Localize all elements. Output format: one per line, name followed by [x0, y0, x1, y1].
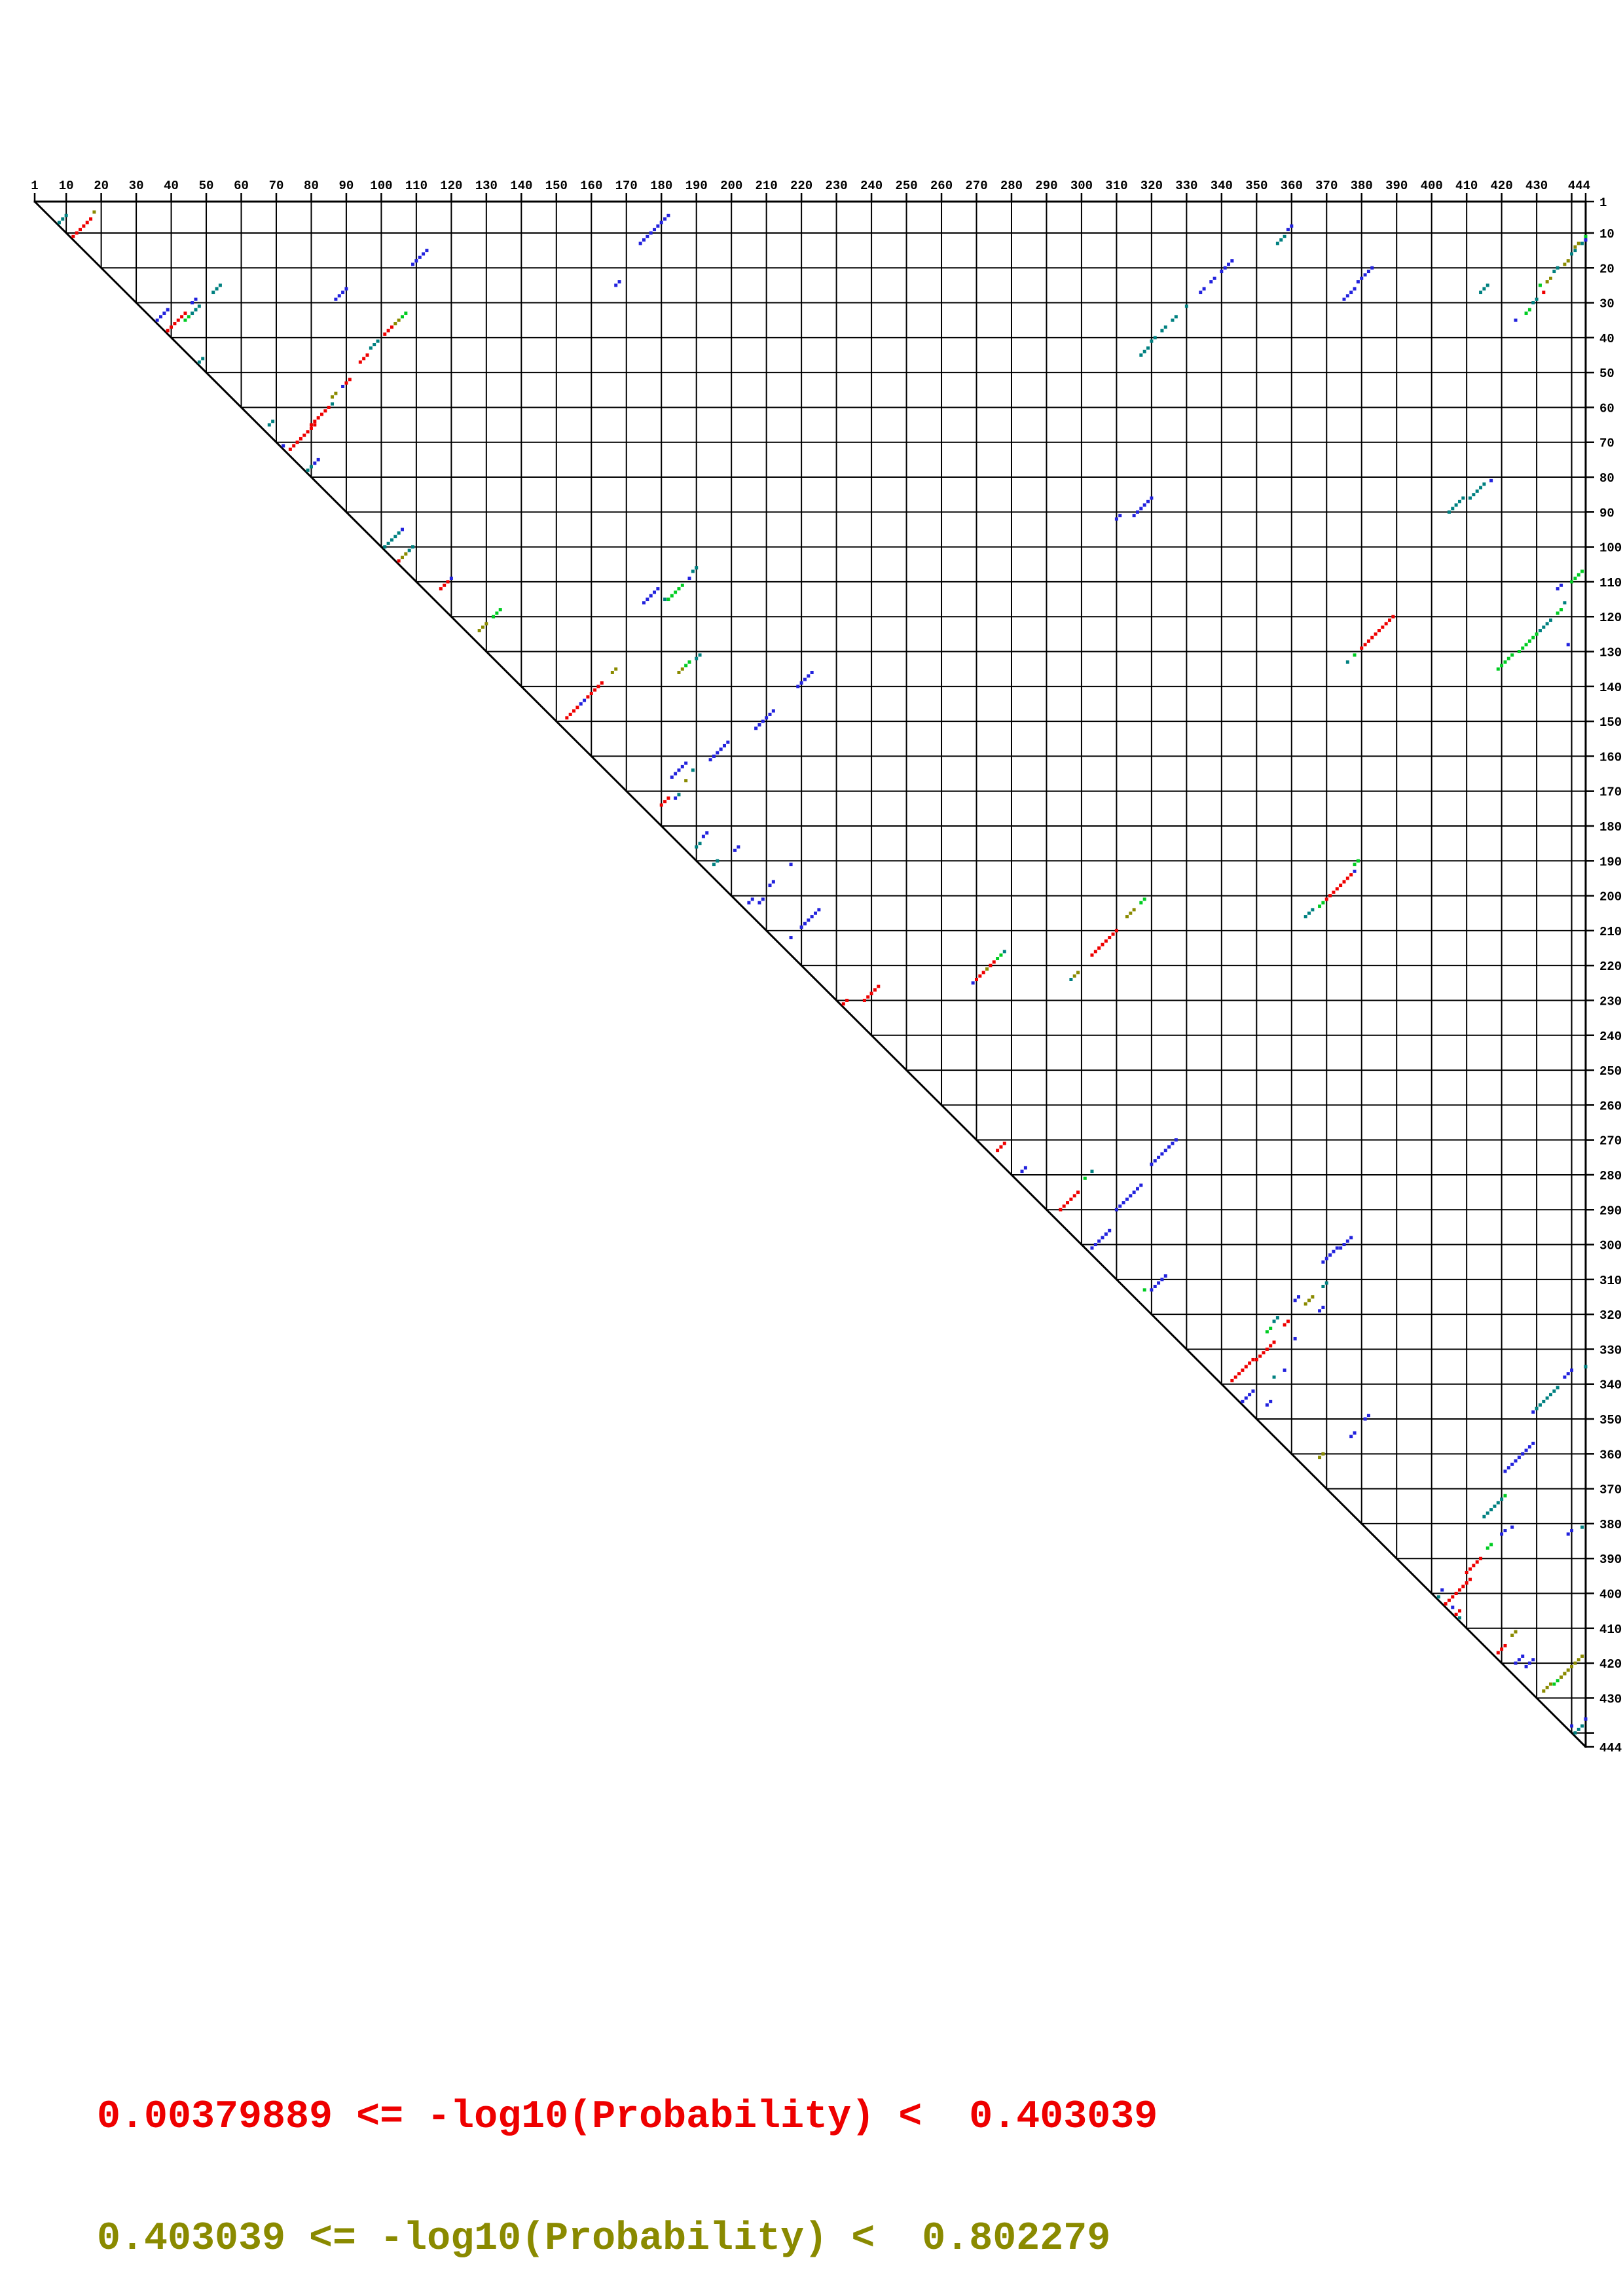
- basepair-dot-b: [1122, 1201, 1125, 1204]
- basepair-dot-g: [1552, 1683, 1556, 1686]
- basepair-dot-r: [1444, 1602, 1448, 1605]
- basepair-dot-b: [720, 747, 723, 751]
- basepair-dot-b: [162, 312, 166, 315]
- page: 1102030405060708090100110120130140150160…: [0, 0, 1623, 2296]
- basepair-dot-o: [677, 671, 680, 674]
- y-tick-label: 170: [1599, 785, 1622, 800]
- basepair-dot-b: [1556, 587, 1559, 590]
- basepair-dot-o: [1073, 975, 1076, 978]
- basepair-dot-b: [1245, 1397, 1248, 1400]
- basepair-dot-r: [1472, 1564, 1475, 1567]
- basepair-dot-b: [1531, 1442, 1535, 1445]
- basepair-dot-t: [677, 793, 680, 797]
- basepair-dot-r: [1542, 291, 1545, 294]
- basepair-dot-b: [450, 577, 453, 580]
- basepair-dot-b: [1090, 1246, 1093, 1249]
- basepair-dot-o: [1570, 1665, 1573, 1668]
- x-tick-label: 20: [94, 179, 109, 193]
- basepair-dot-r: [1059, 1208, 1062, 1211]
- basepair-dot-b: [646, 598, 649, 601]
- basepair-dot-r: [366, 353, 369, 357]
- basepair-dot-t: [198, 304, 201, 308]
- basepair-dot-r: [1325, 897, 1328, 901]
- basepair-dot-o: [481, 626, 484, 629]
- basepair-dot-g: [1503, 660, 1506, 664]
- basepair-dot-b: [1171, 1141, 1174, 1145]
- basepair-dot-b: [677, 768, 680, 772]
- basepair-dot-r: [572, 709, 575, 713]
- basepair-dot-r: [1104, 939, 1108, 942]
- basepair-dot-b: [716, 751, 719, 755]
- y-tick-label: 140: [1599, 681, 1622, 695]
- basepair-dot-b: [1567, 1532, 1570, 1535]
- basepair-dot-r: [296, 440, 299, 444]
- basepair-dot-r: [170, 325, 173, 329]
- y-tick-label: 200: [1599, 890, 1622, 905]
- basepair-dot-r: [1094, 950, 1097, 953]
- basepair-dot-b: [1133, 1191, 1136, 1194]
- basepair-dot-b: [1346, 1240, 1349, 1243]
- basepair-dot-r: [1461, 1585, 1465, 1588]
- x-tick-label: 290: [1035, 179, 1057, 193]
- basepair-dot-b: [618, 280, 621, 283]
- basepair-dot-o: [1321, 1452, 1324, 1456]
- basepair-dot-g: [996, 957, 999, 960]
- basepair-dot-t: [1486, 283, 1489, 287]
- basepair-dot-b: [1521, 1452, 1524, 1456]
- legend: 0.00379889 <= -log10(Probability) < 0.40…: [97, 2016, 1158, 2296]
- basepair-dot-t: [198, 361, 201, 364]
- basepair-dot-t: [1493, 1505, 1496, 1508]
- basepair-dot-t: [1552, 1390, 1556, 1393]
- basepair-dot-r: [877, 985, 880, 988]
- basepair-dot-t: [1482, 482, 1486, 486]
- basepair-dot-r: [575, 706, 579, 709]
- basepair-dot-t: [201, 357, 204, 360]
- basepair-dot-t: [1542, 626, 1545, 629]
- basepair-dot-b: [425, 249, 428, 252]
- basepair-dot-r: [1503, 1644, 1506, 1647]
- y-tick-label: 360: [1599, 1448, 1622, 1462]
- basepair-dot-b: [674, 797, 677, 800]
- basepair-dot-t: [1570, 252, 1573, 255]
- basepair-dot-b: [401, 528, 404, 531]
- y-tick-label: 300: [1599, 1239, 1622, 1253]
- basepair-dot-b: [751, 897, 754, 901]
- basepair-dot-b: [1136, 1187, 1139, 1191]
- basepair-dot-b: [1146, 500, 1150, 503]
- basepair-dot-r: [1286, 1319, 1290, 1323]
- basepair-dot-b: [803, 922, 807, 925]
- basepair-dot-t: [1486, 1511, 1489, 1515]
- basepair-dot-b: [1136, 511, 1139, 514]
- basepair-dot-r: [1367, 639, 1370, 643]
- basepair-dot-b: [642, 601, 646, 604]
- y-tick-label: 110: [1599, 576, 1622, 590]
- basepair-dot-o: [1573, 1662, 1577, 1665]
- basepair-dot-o: [1549, 1683, 1552, 1686]
- basepair-dot-t: [1546, 1397, 1549, 1400]
- basepair-dot-t: [1556, 266, 1559, 270]
- basepair-dot-o: [1580, 1655, 1584, 1658]
- y-tick-label: 290: [1599, 1204, 1622, 1218]
- y-tick-label: 320: [1599, 1308, 1622, 1323]
- basepair-dot-b: [1521, 1655, 1524, 1658]
- x-tick-label: 180: [650, 179, 672, 193]
- basepair-dot-b: [1286, 228, 1290, 231]
- basepair-dot-r: [1255, 1358, 1258, 1361]
- basepair-dot-g: [1318, 905, 1321, 908]
- y-tick-label: 390: [1599, 1552, 1622, 1567]
- basepair-dot-b: [803, 678, 807, 681]
- basepair-dot-b: [1343, 298, 1346, 301]
- basepair-dot-r: [660, 804, 663, 807]
- x-tick-label: 160: [580, 179, 602, 193]
- x-tick-label: 370: [1315, 179, 1338, 193]
- x-tick-label: 320: [1140, 179, 1163, 193]
- basepair-dot-b: [653, 228, 656, 231]
- basepair-dot-r: [327, 406, 331, 409]
- basepair-dot-g: [1556, 611, 1559, 615]
- x-tick-label: 390: [1385, 179, 1408, 193]
- basepair-dot-b: [1154, 1159, 1157, 1162]
- basepair-dot-r: [1497, 1651, 1500, 1655]
- basepair-dot-b: [317, 458, 320, 461]
- basepair-dot-r: [996, 1149, 999, 1152]
- basepair-dot-t: [1573, 249, 1577, 252]
- basepair-dot-t: [61, 217, 64, 221]
- basepair-dot-r: [177, 319, 180, 322]
- probability-dot-plot: 1102030405060708090100110120130140150160…: [0, 0, 1623, 1806]
- y-tick-label: 400: [1599, 1588, 1622, 1602]
- basepair-dot-b: [666, 214, 670, 217]
- basepair-dot-o: [334, 392, 337, 395]
- y-tick-label: 190: [1599, 855, 1622, 869]
- basepair-dot-b: [159, 315, 162, 318]
- basepair-dot-b: [1503, 1529, 1506, 1532]
- basepair-dot-t: [699, 653, 702, 656]
- basepair-dot-b: [757, 723, 761, 726]
- basepair-dot-o: [92, 210, 96, 213]
- basepair-dot-r: [1451, 1595, 1454, 1598]
- basepair-dot-b: [646, 235, 649, 238]
- basepair-dot-b: [334, 298, 337, 301]
- basepair-dot-t: [1139, 353, 1142, 357]
- basepair-dot-b: [156, 319, 159, 322]
- basepair-dot-b: [642, 238, 646, 242]
- basepair-dot-r: [1090, 954, 1093, 957]
- basepair-dot-r: [975, 978, 978, 981]
- basepair-dot-t: [211, 291, 215, 294]
- basepair-dot-r: [180, 315, 183, 318]
- basepair-dot-b: [663, 217, 666, 221]
- basepair-dot-b: [1164, 1149, 1167, 1152]
- basepair-dot-b: [1525, 1665, 1528, 1668]
- basepair-dot-r: [1069, 1198, 1072, 1201]
- basepair-dot-b: [1349, 291, 1353, 294]
- basepair-dot-b: [1175, 1138, 1178, 1141]
- x-tick-label: 220: [790, 179, 812, 193]
- basepair-dot-b: [772, 709, 775, 713]
- basepair-dot-b: [1294, 1337, 1297, 1340]
- basepair-dot-b: [1160, 1152, 1163, 1155]
- basepair-dot-b: [705, 831, 708, 834]
- basepair-dot-o: [1563, 262, 1566, 266]
- basepair-dot-t: [306, 469, 310, 472]
- basepair-dot-t: [215, 287, 219, 291]
- basepair-dot-r: [1465, 1581, 1468, 1585]
- basepair-dot-r: [666, 797, 670, 800]
- basepair-dot-b: [1164, 1274, 1167, 1278]
- basepair-dot-b: [660, 221, 663, 224]
- x-tick-label: 410: [1455, 179, 1478, 193]
- y-tick-label: 40: [1599, 332, 1614, 346]
- basepair-dot-g: [1539, 283, 1542, 287]
- basepair-dot-r: [1479, 1557, 1482, 1560]
- basepair-dot-t: [1539, 1403, 1542, 1407]
- basepair-dot-b: [1570, 1725, 1573, 1728]
- basepair-dot-o: [393, 322, 397, 325]
- basepair-dot-r: [79, 228, 82, 231]
- y-tick-label: 270: [1599, 1134, 1622, 1149]
- x-tick-label: 100: [370, 179, 392, 193]
- basepair-dot-r: [1234, 1376, 1237, 1379]
- basepair-dot-b: [702, 834, 705, 838]
- basepair-dot-t: [65, 214, 68, 217]
- basepair-dot-b: [1321, 1306, 1324, 1309]
- basepair-dot-b: [1567, 1372, 1570, 1375]
- legend-line-1: 0.403039 <= -log10(Probability) < 0.8022…: [97, 2219, 1158, 2259]
- basepair-dot-t: [1003, 950, 1006, 953]
- basepair-dot-r: [845, 999, 848, 1002]
- basepair-dot-t: [1276, 1316, 1279, 1319]
- basepair-dot-b: [1514, 1459, 1518, 1462]
- basepair-dot-b: [772, 880, 775, 884]
- basepair-dot-r: [1458, 1609, 1461, 1613]
- basepair-dot-t: [58, 221, 61, 224]
- y-tick-label: 100: [1599, 541, 1622, 556]
- basepair-dot-b: [1241, 1400, 1244, 1403]
- y-tick-label: 60: [1599, 401, 1614, 416]
- x-tick-label: 300: [1070, 179, 1093, 193]
- basepair-dot-r: [1476, 1560, 1479, 1564]
- basepair-dot-r: [1273, 1340, 1276, 1344]
- basepair-dot-b: [583, 699, 586, 702]
- y-tick-label: 430: [1599, 1692, 1622, 1706]
- basepair-dot-b: [684, 762, 687, 765]
- y-tick-label: 420: [1599, 1657, 1622, 1672]
- basepair-dot-b: [761, 897, 765, 901]
- y-tick-label: 444: [1599, 1741, 1622, 1755]
- basepair-dot-g: [1528, 639, 1531, 643]
- basepair-dot-g: [681, 584, 684, 587]
- probability-dots: [58, 210, 1588, 1734]
- basepair-dot-b: [1209, 280, 1213, 283]
- basepair-dot-b: [754, 726, 757, 730]
- basepair-dot-b: [1143, 503, 1146, 507]
- basepair-dot-t: [1461, 497, 1465, 500]
- basepair-dot-b: [649, 594, 653, 598]
- basepair-dot-r: [600, 681, 604, 685]
- basepair-dot-b: [1157, 1282, 1160, 1285]
- x-tick-label: 280: [1000, 179, 1023, 193]
- plot-border: [34, 201, 1587, 1748]
- x-tick-label: 380: [1351, 179, 1373, 193]
- basepair-dot-r: [1346, 876, 1349, 880]
- basepair-dot-g: [670, 594, 674, 598]
- basepair-dot-g: [1556, 1679, 1559, 1682]
- basepair-dot-r: [1245, 1365, 1248, 1369]
- basepair-dot-b: [1251, 1390, 1254, 1393]
- basepair-dot-t: [699, 842, 702, 845]
- x-tick-label: 10: [59, 179, 74, 193]
- basepair-dot-t: [1479, 291, 1482, 294]
- x-tick-label: 340: [1211, 179, 1233, 193]
- basepair-dot-t: [1273, 1376, 1276, 1379]
- basepair-dot-b: [1518, 1658, 1521, 1661]
- basepair-dot-b: [1203, 287, 1206, 291]
- basepair-dot-b: [1349, 1236, 1353, 1239]
- basepair-dot-b: [1139, 507, 1142, 511]
- basepair-dot-o: [681, 668, 684, 671]
- basepair-dot-b: [1220, 270, 1223, 273]
- basepair-dot-r: [596, 685, 600, 688]
- y-tick-label: 350: [1599, 1413, 1622, 1427]
- x-tick-label: 310: [1105, 179, 1127, 193]
- x-tick-label: 400: [1421, 179, 1443, 193]
- basepair-dot-o: [1125, 915, 1129, 918]
- basepair-dot-g: [1269, 1327, 1272, 1330]
- basepair-dot-b: [790, 936, 793, 939]
- basepair-dot-r: [1448, 1599, 1451, 1602]
- basepair-dot-t: [1489, 1508, 1493, 1511]
- basepair-dot-b: [1570, 1529, 1573, 1532]
- basepair-dot-b: [341, 385, 344, 388]
- y-tick-label: 340: [1599, 1378, 1622, 1393]
- basepair-dot-b: [807, 674, 810, 677]
- basepair-dot-t: [1311, 908, 1314, 911]
- basepair-dot-g: [1357, 859, 1360, 863]
- basepair-dot-b: [817, 908, 820, 911]
- basepair-dot-b: [1230, 259, 1233, 262]
- basepair-dot-r: [313, 423, 316, 427]
- basepair-dot-g: [1321, 901, 1324, 905]
- basepair-dot-r: [1500, 1647, 1503, 1651]
- x-tick-label: 30: [129, 179, 144, 193]
- basepair-dot-t: [408, 548, 411, 552]
- basepair-dot-b: [1115, 1208, 1118, 1211]
- basepair-dot-b: [1160, 1278, 1163, 1281]
- y-tick-label: 130: [1599, 646, 1622, 660]
- basepair-dot-b: [800, 925, 803, 929]
- basepair-dot-b: [1213, 277, 1216, 280]
- basepair-dot-t: [1154, 336, 1157, 339]
- basepair-dot-b: [1440, 1588, 1444, 1592]
- basepair-dot-b: [1559, 584, 1563, 587]
- y-tick-label: 280: [1599, 1169, 1622, 1183]
- basepair-dot-r: [1381, 626, 1384, 629]
- y-tick-label: 80: [1599, 471, 1614, 486]
- basepair-dot-r: [1248, 1361, 1251, 1365]
- basepair-dot-b: [1525, 1448, 1528, 1452]
- y-tick-label: 50: [1599, 367, 1614, 381]
- basepair-dot-t: [1573, 1731, 1577, 1734]
- basepair-dot-r: [1262, 1351, 1266, 1354]
- basepair-dot-b: [1584, 238, 1587, 242]
- basepair-dot-t: [1479, 486, 1482, 490]
- basepair-dot-r: [323, 409, 327, 412]
- x-tick-label: 200: [720, 179, 742, 193]
- basepair-dot-r: [1349, 873, 1353, 876]
- y-tick-label: 310: [1599, 1274, 1622, 1288]
- basepair-dot-b: [1150, 497, 1153, 500]
- basepair-dot-t: [387, 542, 390, 545]
- basepair-dot-g: [1584, 235, 1587, 238]
- basepair-dot-t: [191, 312, 194, 315]
- basepair-dot-b: [1328, 1253, 1332, 1257]
- basepair-dot-b: [1353, 1431, 1357, 1435]
- basepair-dot-r: [978, 975, 981, 978]
- basepair-dot-b: [1343, 1243, 1346, 1246]
- basepair-dot-o: [1559, 1676, 1563, 1679]
- basepair-dot-g: [1497, 668, 1500, 671]
- basepair-dot-t: [1325, 1282, 1328, 1285]
- basepair-dot-r: [317, 416, 320, 420]
- basepair-dot-g: [688, 660, 691, 664]
- basepair-dot-r: [320, 413, 323, 416]
- basepair-dot-t: [1185, 304, 1188, 308]
- basepair-dot-r: [86, 221, 89, 224]
- basepair-dot-b: [656, 587, 659, 590]
- basepair-dot-g: [1353, 653, 1357, 656]
- basepair-dot-b: [1500, 1532, 1503, 1535]
- basepair-dot-r: [89, 217, 92, 221]
- basepair-dot-t: [219, 283, 222, 287]
- basepair-dot-t: [1164, 325, 1167, 329]
- basepair-dot-g: [1084, 1177, 1087, 1180]
- basepair-dot-t: [1171, 319, 1174, 322]
- basepair-dot-b: [194, 298, 197, 301]
- basepair-dot-r: [982, 971, 985, 974]
- basepair-dot-r: [1455, 1592, 1458, 1595]
- basepair-dot-b: [1266, 1403, 1269, 1407]
- basepair-dot-b: [1224, 266, 1227, 270]
- basepair-dot-r: [306, 430, 310, 433]
- x-tick-label: 270: [965, 179, 987, 193]
- basepair-dot-r: [443, 584, 446, 587]
- basepair-dot-t: [268, 423, 271, 427]
- basepair-dot-t: [1549, 619, 1552, 622]
- basepair-dot-g: [1500, 664, 1503, 667]
- basepair-dot-b: [757, 901, 761, 905]
- basepair-dot-b: [1528, 1445, 1531, 1448]
- basepair-dot-o: [397, 319, 401, 322]
- y-tick-label: 20: [1599, 262, 1614, 276]
- basepair-dot-b: [639, 242, 642, 245]
- basepair-dot-b: [768, 713, 771, 716]
- basepair-dot-b: [411, 262, 414, 266]
- basepair-dot-b: [1290, 224, 1293, 228]
- basepair-dot-t: [383, 545, 386, 548]
- basepair-dot-b: [1518, 1456, 1521, 1459]
- y-tick-label: 240: [1599, 1030, 1622, 1044]
- basepair-dot-r: [1101, 943, 1104, 946]
- basepair-dot-b: [1154, 1285, 1157, 1288]
- basepair-dot-t: [1448, 511, 1451, 514]
- basepair-dot-t: [194, 308, 197, 312]
- basepair-dot-r: [439, 587, 443, 590]
- basepair-dot-r: [569, 713, 572, 716]
